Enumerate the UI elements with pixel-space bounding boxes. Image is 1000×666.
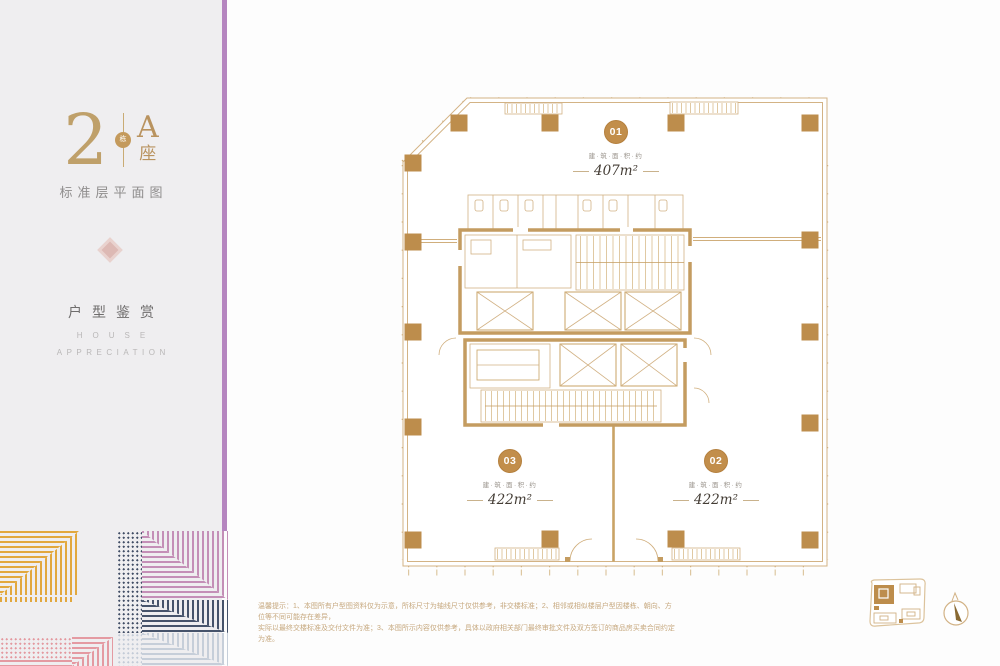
building-badge: 栋	[115, 132, 131, 148]
brochure-page: 2 栋 A 座 标准层平面图 户型鉴赏 HOUSE APPRECIATION	[0, 0, 1000, 666]
disclaimer: 温馨提示：1、本图所有户型图资料仅为示意，所标尺寸为轴线尺寸仅供参考，非交楼标准…	[258, 601, 676, 645]
compass-icon	[939, 591, 973, 627]
stair-upper	[576, 235, 684, 290]
pattern-gold	[0, 531, 79, 595]
dash-right	[743, 500, 759, 501]
block-label: A 座	[137, 115, 159, 165]
core-upper-rooms	[465, 235, 571, 288]
unit-label-02: 02 建·筑·面·积·约 422m²	[660, 449, 772, 508]
unit-area-caption: 建·筑·面·积·约	[689, 479, 744, 489]
pattern-navy-dots	[117, 531, 142, 633]
dash-left	[573, 171, 589, 172]
dash-right	[537, 500, 553, 501]
unit-number-badge: 03	[498, 449, 522, 473]
unit-number-badge: 02	[704, 449, 728, 473]
pattern-pink-stripes	[0, 660, 72, 666]
pattern-navy	[142, 600, 228, 633]
site-keyplan-icon	[862, 577, 934, 631]
unit-number-badge: 01	[604, 120, 628, 144]
unit-area-value: 407m²	[594, 163, 638, 179]
unit-area-caption: 建·筑·面·积·约	[483, 479, 538, 489]
pattern-pink-dots	[0, 637, 72, 659]
building-number: 2	[63, 112, 108, 168]
equipment-room	[470, 344, 550, 388]
unit-area-value: 422m²	[694, 492, 738, 508]
disclaimer-line-2: 实际以最终交楼标准及交付文件为准；3、本图所示内容仅供参考，具体以政府相关部门最…	[258, 623, 676, 645]
dash-left	[673, 500, 689, 501]
block-suffix: 座	[139, 143, 156, 165]
unit-area-value: 422m²	[488, 492, 532, 508]
pattern-gray	[142, 633, 228, 666]
section-subtitle-en2: APPRECIATION	[0, 348, 222, 357]
pattern-pink	[72, 637, 113, 666]
plan-title: 标准层平面图	[0, 182, 222, 201]
dash-right	[643, 171, 659, 172]
pattern-gold-dashrow	[0, 597, 75, 602]
unit-label-03: 03 建·筑·面·积·约 422m²	[454, 449, 566, 508]
block-letter: A	[137, 115, 159, 141]
accent-vertical-line	[222, 0, 227, 531]
section-subtitle-en1: HOUSE	[0, 331, 222, 340]
core-bathrooms	[468, 195, 683, 230]
disclaimer-line-1: 温馨提示：1、本图所有户型图资料仅为示意，所标尺寸为轴线尺寸仅供参考，非交楼标准…	[258, 601, 676, 623]
section-title: 户型鉴赏	[0, 302, 222, 322]
building-logo: 2 栋 A 座	[0, 112, 222, 168]
unit-label-01: 01 建·筑·面·积·约 407m²	[560, 120, 672, 179]
unit-area-caption: 建·筑·面·积·约	[589, 150, 644, 160]
elevator-bank-upper	[477, 292, 681, 330]
diamond-ornament	[97, 237, 122, 262]
pattern-gray-dots	[117, 633, 142, 666]
logo-divider: 栋	[123, 113, 124, 167]
pattern-mauve	[142, 531, 228, 600]
demising-wall-vertical	[612, 425, 615, 562]
dash-left	[467, 500, 483, 501]
stair-lower	[481, 390, 661, 422]
